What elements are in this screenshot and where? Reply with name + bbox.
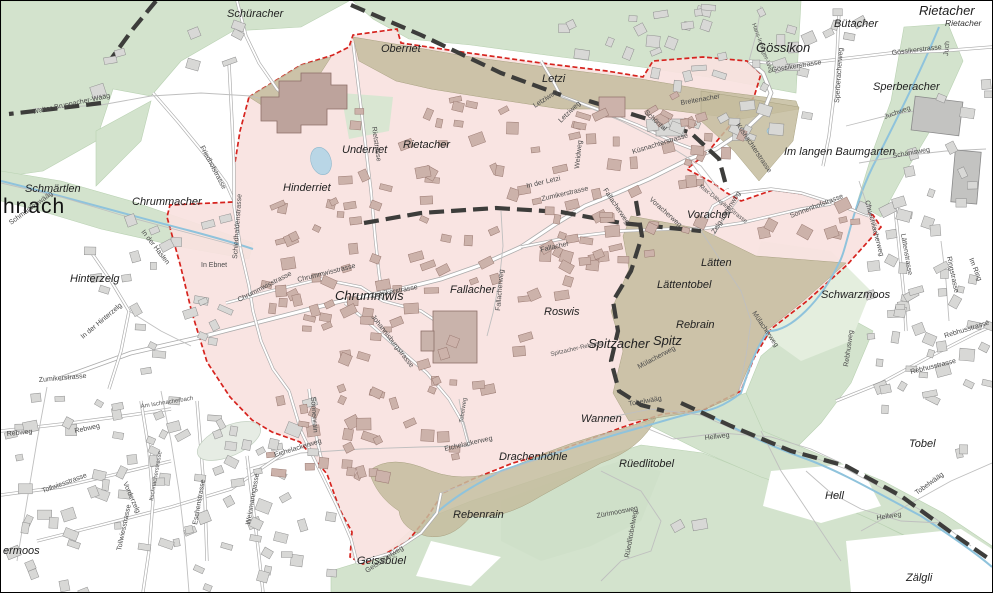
building	[348, 243, 358, 254]
building	[886, 229, 897, 239]
building	[15, 454, 23, 461]
building	[437, 431, 449, 442]
building	[586, 134, 596, 144]
building	[375, 470, 391, 483]
building	[268, 438, 279, 450]
building	[956, 199, 967, 208]
map-label: Rebrain	[676, 319, 715, 331]
building	[938, 288, 947, 296]
building	[59, 580, 70, 592]
building	[208, 337, 218, 345]
building	[302, 326, 311, 332]
building	[141, 367, 152, 374]
map-label: Chrummacher	[132, 196, 203, 208]
building	[600, 212, 613, 218]
building	[451, 453, 459, 460]
building	[135, 324, 146, 331]
building	[370, 333, 381, 341]
building	[127, 454, 138, 464]
building	[281, 552, 292, 558]
map-label: Wannen	[581, 413, 622, 425]
building	[404, 303, 419, 314]
building	[506, 122, 518, 134]
building	[833, 9, 842, 16]
building	[985, 91, 993, 98]
map-label: Schüracher	[227, 8, 285, 20]
map-label: Hinderriet	[283, 182, 332, 194]
building	[349, 216, 361, 225]
map-label: Hell	[825, 490, 845, 502]
building	[231, 478, 245, 487]
map-label: Drachenhöhle	[499, 451, 568, 463]
building	[801, 112, 812, 120]
building	[740, 100, 756, 111]
building	[691, 145, 705, 155]
map-label: Hinterzelg	[70, 273, 120, 285]
map-label: Lätten	[701, 257, 732, 269]
building	[308, 449, 319, 456]
building	[717, 52, 727, 61]
map-frame: hnachSchüracherOberrietLetziGössikonBüta…	[0, 0, 993, 593]
building	[356, 418, 371, 430]
building	[49, 517, 58, 528]
building	[867, 260, 880, 271]
map-canvas: hnachSchüracherOberrietLetziGössikonBüta…	[1, 1, 992, 592]
map-label: Spitz	[653, 333, 682, 348]
building	[701, 4, 716, 11]
building	[21, 522, 30, 534]
map-label: Letzi	[542, 73, 566, 85]
map-label: Sperberacher	[873, 81, 941, 93]
map-label: Lättentobel	[657, 279, 712, 291]
building	[31, 393, 42, 402]
building	[275, 285, 287, 297]
building	[342, 428, 353, 440]
building	[694, 9, 702, 17]
building	[553, 214, 561, 224]
map-label: Rüedlitobel	[619, 458, 675, 470]
building	[55, 396, 65, 402]
map-label: Schmärtlen	[25, 183, 81, 195]
map-label: Bütacher	[834, 18, 879, 30]
building	[650, 67, 660, 79]
building	[646, 35, 660, 48]
building	[579, 257, 591, 266]
building	[644, 250, 655, 258]
building	[420, 196, 433, 205]
building	[753, 60, 760, 68]
building	[681, 119, 689, 127]
building	[768, 123, 783, 136]
building	[607, 159, 622, 171]
building	[959, 445, 967, 454]
building	[618, 256, 629, 263]
building	[424, 287, 439, 293]
building	[981, 79, 991, 89]
building	[84, 247, 96, 255]
map-label: ermoos	[3, 545, 40, 557]
building	[513, 346, 526, 357]
building	[318, 457, 328, 469]
building	[686, 175, 697, 188]
map-label: Tobel	[909, 438, 936, 450]
building	[591, 188, 601, 199]
building	[605, 225, 621, 237]
building	[326, 569, 336, 577]
building	[936, 341, 947, 352]
building	[346, 467, 355, 476]
building	[896, 304, 905, 310]
building	[891, 331, 900, 343]
building	[185, 525, 194, 534]
building	[704, 133, 712, 141]
building	[881, 405, 888, 414]
building	[574, 49, 590, 60]
building	[959, 348, 975, 361]
building	[721, 147, 731, 159]
building	[337, 211, 344, 217]
building	[281, 257, 296, 270]
building	[630, 157, 638, 169]
building	[464, 235, 473, 246]
building	[121, 274, 131, 282]
building	[967, 182, 977, 190]
map-label: Rietacher	[945, 18, 983, 28]
building	[454, 120, 464, 127]
building	[150, 262, 156, 269]
building	[531, 147, 540, 153]
building	[300, 404, 308, 414]
building	[18, 484, 32, 494]
building	[930, 225, 941, 237]
building	[867, 333, 875, 340]
map-label: Fallacher	[450, 284, 497, 296]
building	[319, 313, 332, 323]
map-label: Rietacher	[403, 139, 451, 151]
map-label: Rebenrain	[453, 509, 504, 521]
building	[268, 303, 276, 314]
building	[554, 290, 569, 301]
building	[613, 137, 619, 146]
building	[851, 219, 860, 225]
map-label: Oberriet	[381, 43, 422, 55]
building	[350, 121, 361, 130]
building	[242, 439, 252, 450]
building	[876, 359, 883, 367]
building	[673, 80, 682, 92]
map-label: Juch	[943, 41, 951, 56]
building	[229, 426, 238, 436]
map-label: In Ebnet	[201, 262, 227, 269]
building	[545, 207, 554, 215]
building	[960, 107, 976, 119]
building	[421, 429, 435, 441]
building	[692, 65, 707, 71]
building	[102, 479, 110, 490]
building	[339, 176, 353, 185]
building	[305, 463, 314, 470]
building	[276, 395, 286, 405]
building	[279, 298, 288, 307]
map-label: Zälgli	[905, 572, 933, 584]
building	[355, 109, 364, 115]
building	[271, 468, 286, 477]
building	[472, 381, 485, 390]
building	[325, 512, 336, 522]
map-label: Schwarzmoos	[821, 289, 891, 301]
map-label: Rietacher	[919, 3, 975, 18]
building	[495, 165, 504, 176]
building	[152, 350, 166, 358]
map-label: Roswis	[544, 306, 580, 318]
building	[904, 166, 916, 178]
building	[450, 380, 457, 386]
building	[629, 15, 637, 21]
map-label: Im langen Baumgarten	[784, 146, 895, 158]
building	[225, 441, 237, 451]
